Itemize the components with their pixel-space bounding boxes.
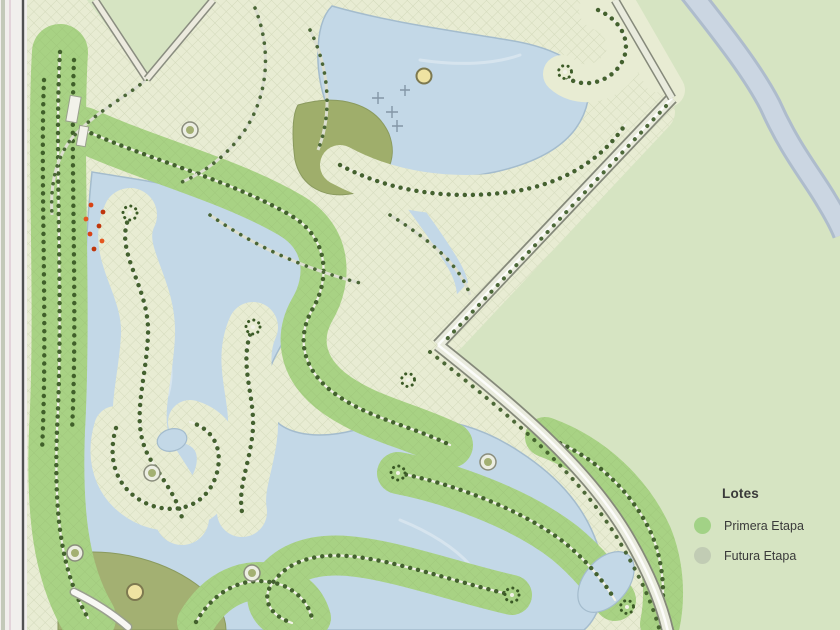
site-plan-screenshot: Lotes Primera Etapa Futura Etapa: [0, 0, 840, 630]
futura-etapa-swatch-icon: [694, 547, 711, 564]
legend-item-primera: Primera Etapa: [694, 517, 834, 534]
legend-item-futura: Futura Etapa: [694, 547, 834, 564]
map-border-strip: [0, 0, 27, 630]
legend-label: Primera Etapa: [724, 519, 804, 533]
legend-title: Lotes: [722, 486, 834, 501]
primera-etapa-swatch-icon: [694, 517, 711, 534]
legend: Lotes Primera Etapa Futura Etapa: [694, 486, 834, 577]
amenity-marker-icon: [127, 584, 143, 600]
legend-label: Futura Etapa: [724, 549, 796, 563]
amenity-marker-icon: [417, 69, 432, 84]
